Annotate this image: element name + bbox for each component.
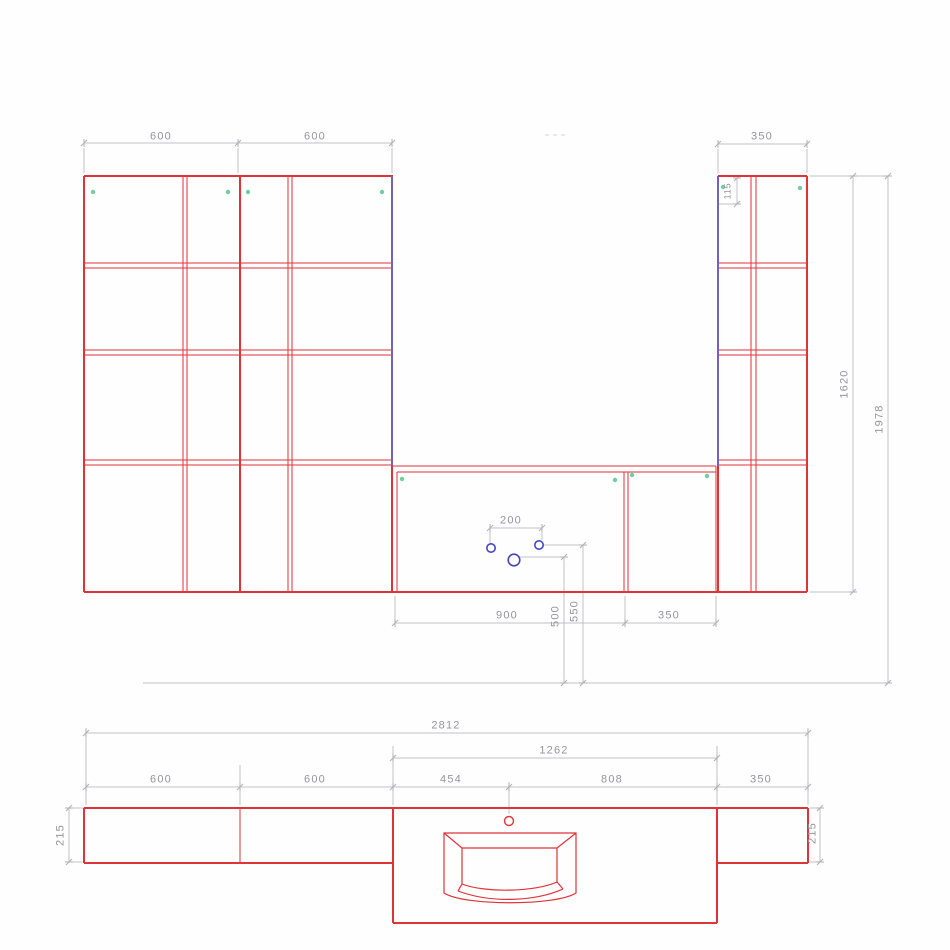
- dim-vanity-hole-spacing: 200: [500, 516, 522, 527]
- dim-elev-cabinet-height: 1620: [840, 369, 851, 398]
- dim-elev-total-height: 1978: [875, 404, 886, 433]
- faucet-hole: [505, 817, 514, 826]
- sink-basin: [444, 817, 576, 903]
- dim-plan-seg-right: 350: [750, 775, 772, 786]
- dim-plan-sink-span: 808: [601, 775, 623, 786]
- elevation-right-tower: [718, 176, 807, 592]
- dim-vanity-door-width: 900: [496, 611, 518, 622]
- elevation-left-tower: [84, 176, 807, 592]
- dim-plan-seg-left-a: 600: [150, 775, 172, 786]
- dim-plan-depth-right: 215: [808, 822, 819, 844]
- dim-plan-sink-offset: 454: [440, 775, 462, 786]
- selected-panel-edges: [392, 176, 718, 466]
- elevation-vanity-unit: [393, 466, 716, 592]
- dim-plan-seg-left-b: 600: [304, 775, 326, 786]
- dim-plan-counter-width: 1262: [539, 746, 568, 757]
- dimension-ticks: [65, 139, 892, 865]
- dim-plan-total-width: 2812: [431, 721, 460, 732]
- plan-dimension-lines: [68, 728, 824, 862]
- elevation-dimension-lines: [84, 135, 891, 683]
- dim-elev-hinge-offset: 115: [724, 183, 733, 200]
- plan-outline: [84, 808, 808, 923]
- plumbing-hole-markers: [487, 541, 543, 566]
- cad-linework: [0, 0, 950, 950]
- dim-vanity-side-width: 350: [658, 611, 680, 622]
- hinge-markers: [91, 185, 802, 482]
- dim-hole-height-pair: 550: [570, 600, 581, 622]
- cad-drawing-canvas: 600 600 350 115 1620 1978 200 900 350 50…: [0, 0, 950, 950]
- dim-hole-height-center: 500: [551, 605, 562, 627]
- dim-elev-top-right: 350: [751, 132, 773, 143]
- dim-elev-top-left-a: 600: [150, 132, 172, 143]
- dim-elev-top-left-b: 600: [304, 132, 326, 143]
- dim-plan-depth-left: 215: [56, 824, 67, 846]
